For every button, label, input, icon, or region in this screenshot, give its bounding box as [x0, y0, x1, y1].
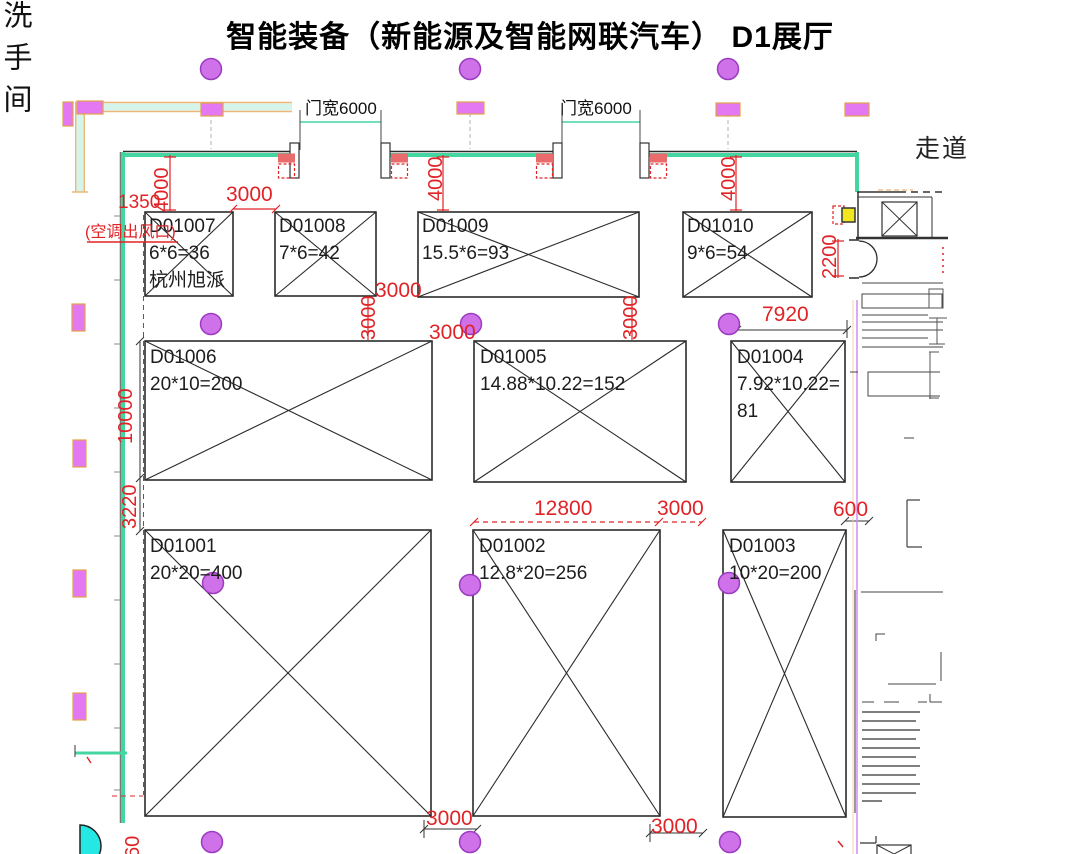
dim-2200: 2200 [819, 235, 842, 280]
dim-4000-b: 4000 [425, 157, 448, 202]
dim-3000-v2: 3000 [620, 296, 643, 341]
double-door-swing [849, 240, 877, 278]
booth-id: D01003 [729, 533, 821, 560]
column-centerlines [211, 113, 728, 149]
booth-d01001: D01001 20*20=400 [150, 533, 242, 587]
booth-exhibitor: 杭州旭派 [149, 267, 225, 294]
booth-d01006: D01006 20*10=200 [150, 344, 242, 398]
dim-3220: 3220 [119, 485, 142, 530]
booth-area: 15.5*6=93 [422, 240, 509, 267]
dim-600: 600 [833, 498, 868, 522]
booth-area: 10*20=200 [729, 560, 821, 587]
booth-area: 12.8*20=256 [479, 560, 587, 587]
elevator [856, 190, 948, 238]
booth-area: 7*6=42 [279, 240, 346, 267]
booth-d01005: D01005 14.88*10.22=152 [480, 344, 625, 398]
booth-d01009: D01009 15.5*6=93 [422, 213, 509, 267]
page-title: 智能装备（新能源及智能网联汽车） D1展厅 [150, 12, 910, 56]
stairs [860, 712, 920, 854]
dim-3000-bottom1: 3000 [426, 807, 473, 831]
exterior-wall-top-left [72, 102, 292, 192]
booth-d01003: D01003 10*20=200 [729, 533, 821, 587]
dim-60: 60 [122, 836, 145, 854]
booth-area: 14.88*10.22=152 [480, 371, 625, 398]
booth-d01010: D01010 9*6=54 [687, 213, 754, 267]
booth-area: 6*6=36 [149, 240, 225, 267]
dim-3000-gap89: 3000 [375, 279, 422, 303]
door-width-label-2: 门宽6000 [560, 94, 632, 119]
booth-id: D01008 [279, 213, 346, 240]
booth-id: D01004 [737, 344, 840, 371]
dim-10000: 10000 [115, 388, 138, 444]
booth-d01004: D01004 7.92*10.22= 81 [737, 344, 840, 425]
floor-plan-canvas: 智能装备（新能源及智能网联汽车） D1展厅 门宽6000 门宽6000 走道 洗… [0, 0, 1080, 854]
dim-3000-gap65: 3000 [429, 321, 476, 345]
booth-id: D01001 [150, 533, 242, 560]
ac-outlet-label: (空调出风口) [85, 218, 176, 242]
booth-area: 7.92*10.22= [737, 371, 840, 398]
booth-id: D01006 [150, 344, 242, 371]
dim-3000-top: 3000 [226, 183, 273, 207]
dim-12800: 12800 [534, 497, 592, 521]
yellow-marker [833, 206, 855, 224]
booth-id: D01002 [479, 533, 587, 560]
booth-area: 20*20=400 [150, 560, 242, 587]
dim-7920: 7920 [762, 303, 809, 327]
corridor-label: 走道 [915, 129, 969, 165]
booth-id: D01010 [687, 213, 754, 240]
dim-4000-a: 4000 [151, 168, 174, 213]
fire-hose-symbols [278, 154, 667, 179]
restroom-fixtures [850, 283, 947, 854]
booth-area: 9*6=54 [687, 240, 754, 267]
booth-area-2: 81 [737, 398, 840, 425]
door-width-label-1: 门宽6000 [305, 94, 377, 119]
booth-area: 20*10=200 [150, 371, 242, 398]
booth-id: D01009 [422, 213, 509, 240]
door-jambs [290, 143, 649, 178]
booth-d01002: D01002 12.8*20=256 [479, 533, 587, 587]
booth-outlines [145, 212, 846, 817]
booth-id: D01005 [480, 344, 625, 371]
dim-3000-gap23: 3000 [657, 497, 704, 521]
dim-3000-v1: 3000 [358, 296, 381, 341]
dim-3000-bottom2: 3000 [651, 815, 698, 839]
cyan-marker [80, 825, 101, 854]
dim-4000-c: 4000 [718, 157, 741, 202]
booth-d01008: D01008 7*6=42 [279, 213, 346, 267]
